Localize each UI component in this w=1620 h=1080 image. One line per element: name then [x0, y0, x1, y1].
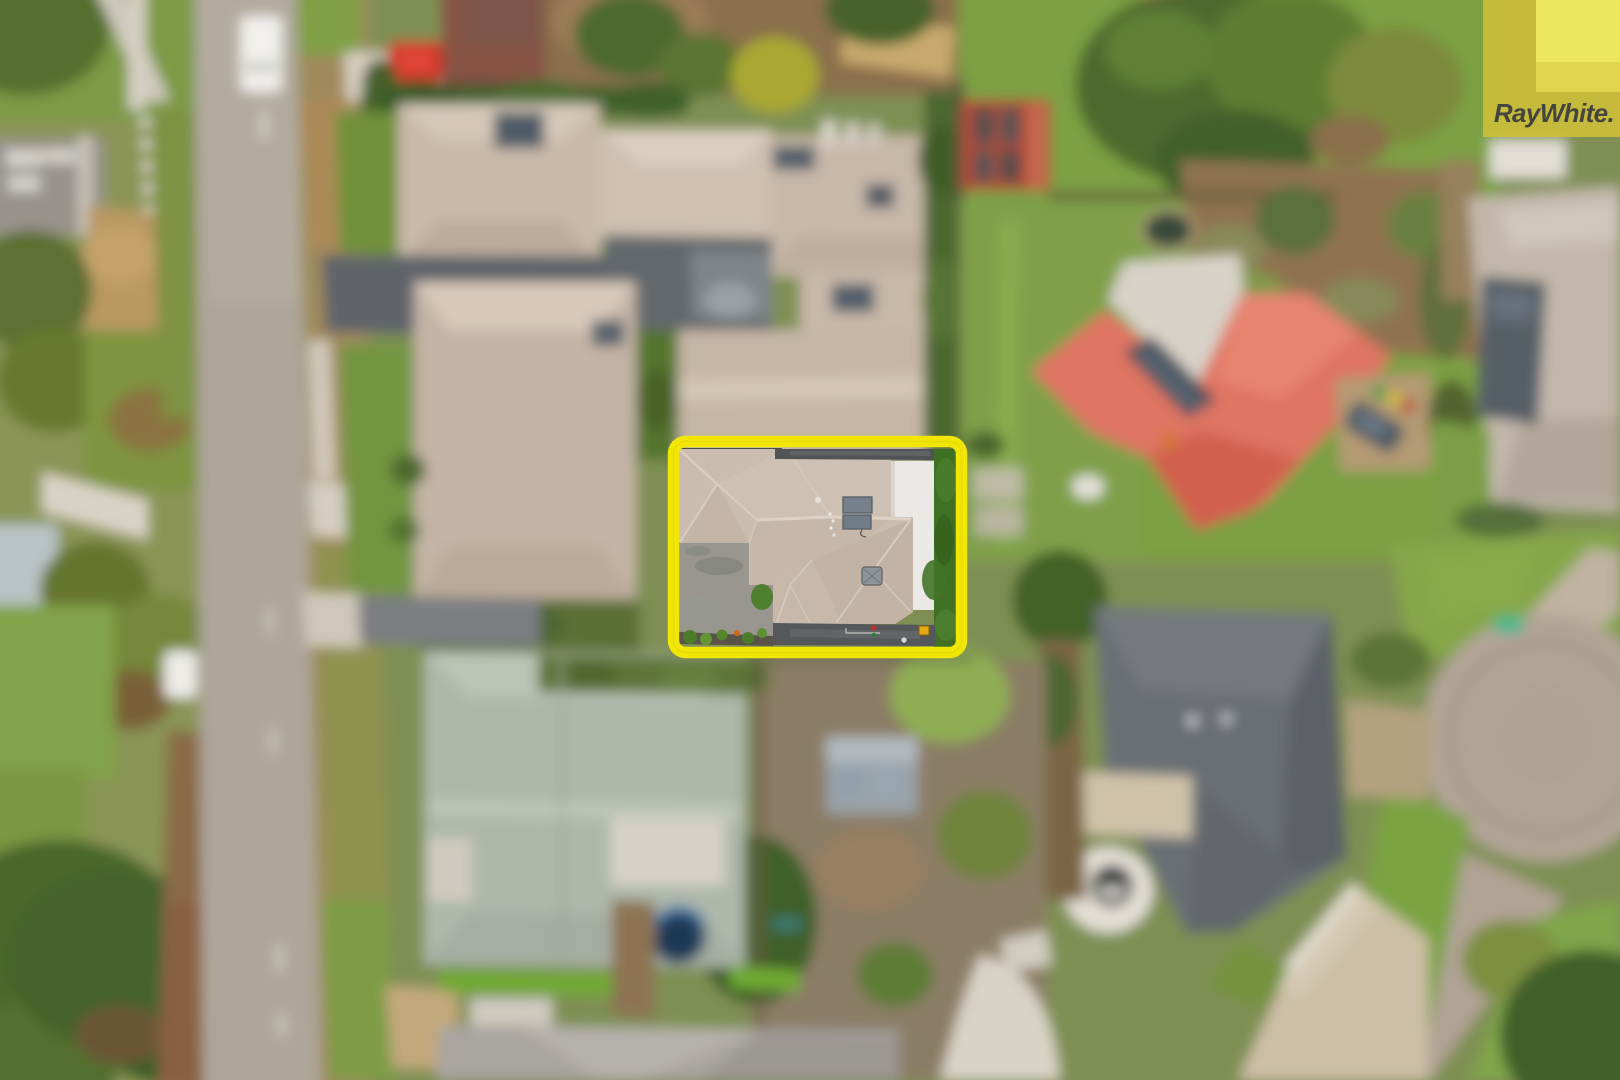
svg-text:RayWhite.: RayWhite.	[1494, 98, 1614, 128]
